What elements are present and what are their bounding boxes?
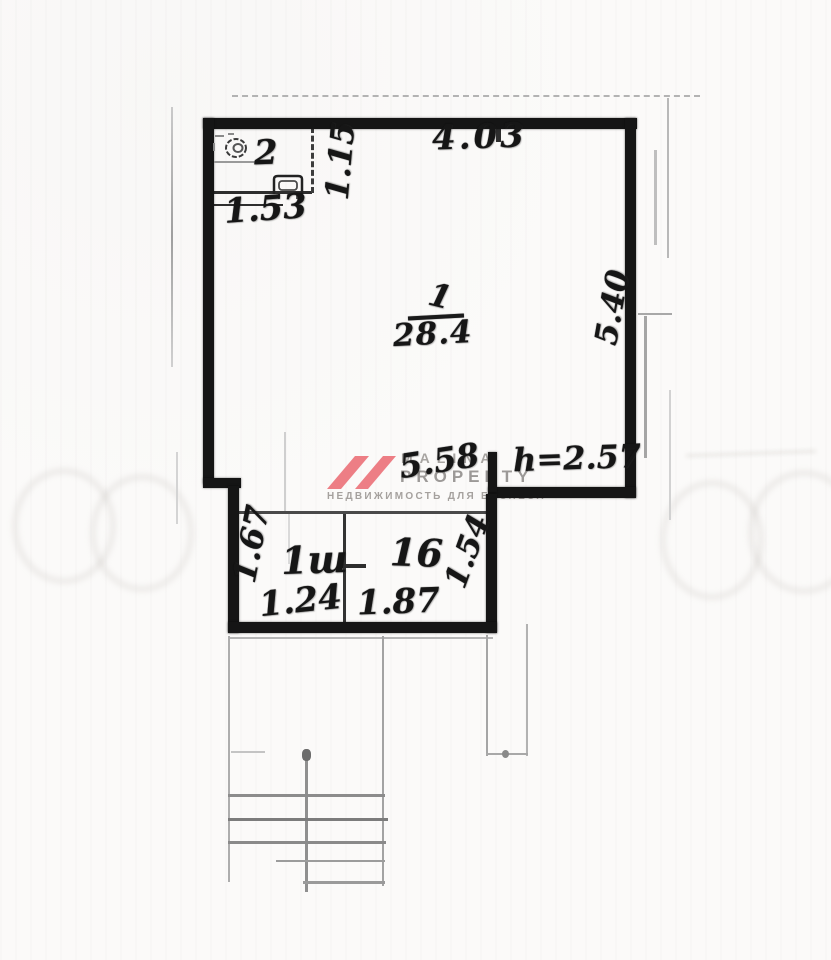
adjacent-wall-line: [644, 316, 647, 458]
stairwell-mark: [302, 749, 311, 761]
room-wc-number: 2: [253, 136, 278, 171]
ghost-letter: [90, 474, 194, 592]
dimension-extension-line: [232, 95, 700, 97]
wall-bottom-right: [488, 487, 636, 498]
room-main-area: 28.4: [392, 317, 473, 352]
dim-wc-depth: 1.15: [321, 123, 360, 201]
wall-left: [203, 118, 214, 484]
dim-ceiling-height: h=2.57: [512, 440, 641, 476]
adjacent-wall-line: [654, 150, 657, 245]
adjacent-wall-tick: [638, 313, 672, 315]
stair-line: [228, 794, 385, 797]
stair-line: [303, 881, 385, 884]
stair-line: [231, 751, 265, 753]
stair-line: [276, 860, 385, 862]
annex-underline: [230, 637, 493, 639]
faint-partition-line: [284, 432, 286, 512]
adjacent-wall-line: [667, 98, 669, 258]
utility-shaft-line: [486, 635, 488, 756]
dim-wc-width: 1.53: [223, 189, 308, 229]
utility-shaft-line: [526, 624, 528, 756]
stairwell-wall-line: [382, 636, 384, 886]
stairwell-center-line: [305, 752, 308, 892]
wc-opening-dashed-line: [311, 127, 314, 193]
dim-annex-right-width: 1.87: [356, 584, 440, 621]
stairwell-wall-line: [228, 636, 230, 882]
room-annex-right-label: 16: [389, 533, 443, 573]
adjacent-wall-line: [669, 390, 671, 520]
dimension-stub: [488, 452, 497, 492]
dimension-extension-line: [171, 107, 173, 367]
dimension-extension-line: [176, 452, 178, 524]
utility-shaft-mark: [502, 750, 509, 758]
dim-annex-left-width: 1.24: [257, 580, 343, 622]
room-annex-left-label: 1ш: [280, 540, 348, 580]
malina-logo-icon: [325, 451, 399, 491]
stair-line: [228, 841, 386, 844]
dim-top-width: 4.03: [431, 118, 527, 155]
stair-line: [228, 818, 388, 821]
floor-plan-page: 2 4.03 1.53 1.15 5.40 1 28.4 5.58 h=2.57…: [0, 0, 831, 960]
annex-wall-right: [486, 494, 497, 633]
wall-top: [203, 118, 637, 129]
